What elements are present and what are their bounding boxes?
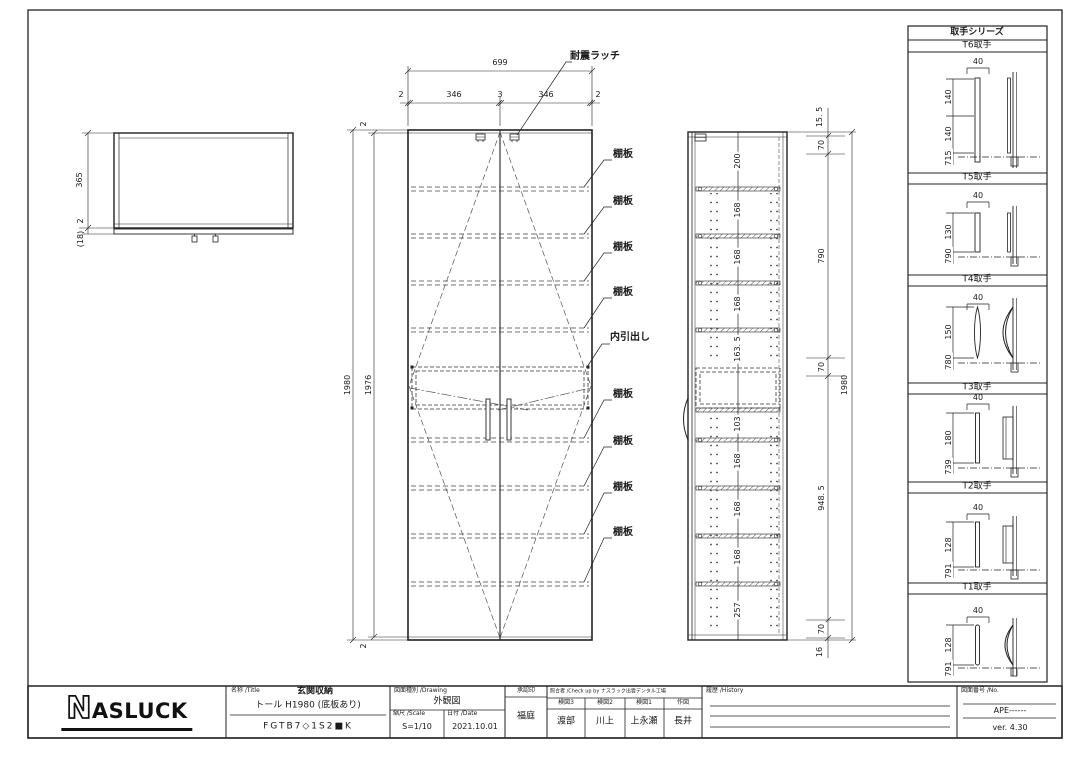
check-header: 照合者 /Check up by ナスラック出雲デンタル工場 — [550, 690, 666, 695]
dim-handle-width: 40 — [973, 504, 983, 512]
dim-handle-width: 40 — [973, 58, 983, 66]
dim-front-edge-bottom: 2 — [360, 643, 368, 648]
dim-handle-width: 40 — [973, 607, 983, 615]
dim-handle: 791 — [945, 561, 953, 580]
check-role: 作図 — [677, 700, 689, 706]
handle-t3 — [946, 404, 1042, 477]
hinge-icon — [213, 234, 218, 242]
label-shelf: 棚板 — [613, 150, 633, 160]
dim-topview-door: (18) — [77, 231, 85, 247]
dim-side-right: 70 — [818, 622, 826, 636]
history-rule-lines — [710, 706, 950, 727]
check-name: 渡部 — [557, 718, 575, 727]
number-header: 図面番号 /No. — [961, 688, 999, 694]
dim-front-width-part: 2 — [595, 91, 600, 99]
dim-side-internal: 200 — [734, 151, 742, 170]
label-drawer: 内引出し — [610, 333, 650, 343]
dim-side-right: 790 — [818, 246, 826, 265]
dim-handle-width: 40 — [973, 394, 983, 402]
handle-t5 — [946, 202, 1042, 266]
dim-handle: 780 — [945, 352, 953, 371]
dim-side-right: 16 — [816, 647, 824, 657]
dim-side-internal: 168 — [734, 294, 742, 313]
dim-front-width-part: 2 — [398, 91, 403, 99]
handle-section-title: T6取手 — [962, 42, 991, 51]
name-header: 名称 /Title — [231, 688, 260, 694]
dim-side-internal: 257 — [734, 600, 742, 619]
name-sub: トール H1980 (底板あり) — [255, 702, 360, 711]
check-role: 検図3 — [558, 700, 574, 706]
dim-side-right: 70 — [818, 138, 826, 152]
number-value: APE------ — [994, 707, 1027, 715]
label-shelf: 棚板 — [613, 483, 633, 493]
label-latch: 耐震ラッチ — [570, 52, 620, 62]
dim-handle: 715 — [945, 148, 953, 167]
handle-t4 — [946, 298, 1042, 372]
dim-side-internal: 168 — [734, 200, 742, 219]
drawing-header: 図面種別 /Drawing — [394, 688, 447, 694]
dim-handle: 140 — [945, 89, 953, 104]
approval-header: 承認印 — [517, 688, 535, 694]
dim-handle: 130 — [945, 224, 953, 239]
side-view — [684, 108, 857, 658]
label-shelf: 棚板 — [613, 288, 633, 298]
handle-t1 — [946, 617, 1042, 676]
dim-front-height-outer: 1980 — [344, 373, 352, 397]
dim-handle-width: 40 — [973, 294, 983, 302]
label-shelf: 棚板 — [613, 437, 633, 447]
model-number: FGTB7◇1S2■K — [263, 723, 353, 732]
handle-section-title: T5取手 — [962, 174, 991, 183]
dim-front-width-part: 346 — [538, 91, 553, 99]
top-view — [79, 130, 293, 242]
dim-handle: 150 — [945, 324, 953, 339]
dim-handle: 791 — [945, 659, 953, 678]
handle-section-title: T1取手 — [962, 584, 991, 593]
dim-front-width-total: 699 — [492, 59, 507, 67]
logo-rest: ASLUCK — [92, 699, 188, 723]
handle-t6 — [946, 68, 1042, 168]
label-shelf: 棚板 — [613, 243, 633, 253]
latch-icon — [476, 134, 485, 142]
nasluck-logo: NASLUCK — [61, 691, 192, 731]
dim-side-right: 70 — [818, 360, 826, 374]
handle-section-title: T3取手 — [962, 384, 991, 393]
check-role: 検図2 — [597, 700, 613, 706]
history-header: 履歴 /History — [706, 688, 743, 694]
check-name: 川上 — [596, 718, 614, 727]
front-view — [347, 62, 612, 643]
dim-handle: 128 — [945, 637, 953, 652]
front-left-dims — [347, 127, 408, 643]
dim-side-internal: 168 — [734, 451, 742, 470]
dim-handle: 180 — [945, 430, 953, 445]
dim-front-width-part: 346 — [446, 91, 461, 99]
check-name: 上永瀬 — [630, 718, 657, 727]
dim-front-width-part: 3 — [497, 91, 502, 99]
dim-handle: 790 — [945, 246, 953, 265]
dim-topview-depth: 365 — [76, 170, 84, 189]
dim-handle-width: 40 — [973, 192, 983, 200]
logo-n: N — [66, 691, 92, 726]
dim-side-internal: 168 — [734, 547, 742, 566]
dim-side-internal: 168 — [734, 247, 742, 266]
dim-front-edge-top: 2 — [360, 121, 368, 126]
handle-panel-title: 取手シリーズ — [950, 29, 1004, 38]
date-value: 2021.10.01 — [452, 723, 498, 731]
latch-icon — [695, 134, 706, 141]
check-name: 長井 — [674, 718, 692, 727]
handle-section-title: T2取手 — [962, 483, 991, 492]
dim-topview-gap: 2 — [77, 218, 85, 223]
dim-side-internal: 103 — [734, 414, 742, 433]
door-handle — [486, 399, 511, 440]
label-shelf: 棚板 — [613, 528, 633, 538]
drawing-linework — [0, 0, 1080, 764]
dim-side-right: 15. 5 — [816, 107, 824, 127]
scale-value: S=1/10 — [402, 723, 432, 731]
dim-side-internal: 163. 5 — [734, 334, 742, 363]
label-shelf: 棚板 — [613, 390, 633, 400]
approval-stamp: 福庭 — [517, 713, 535, 722]
version-value: ver. 4.30 — [992, 724, 1027, 732]
dim-side-right: 948. 5 — [818, 483, 826, 512]
dim-front-height-inner: 1976 — [365, 373, 373, 397]
scale-header: 縮尺 /Scale — [393, 711, 425, 717]
hinge-icon — [192, 234, 197, 242]
date-header: 日付 /Date — [447, 711, 477, 717]
label-leaders — [517, 62, 612, 582]
dim-side-height-total: 1980 — [841, 375, 849, 395]
drawing-value: 外観図 — [433, 698, 460, 707]
name-value: 玄関収納 — [297, 688, 333, 697]
dim-handle: 128 — [945, 537, 953, 552]
label-shelf: 棚板 — [613, 197, 633, 207]
check-role: 検図1 — [636, 700, 652, 706]
dim-handle: 739 — [945, 457, 953, 476]
drawing-sheet: 365 2 (18) 699 2 346 3 346 2 1980 1976 2… — [0, 0, 1080, 764]
dim-handle: 140 — [945, 126, 953, 141]
handle-t2 — [946, 514, 1042, 579]
sheet-frame — [28, 10, 1062, 738]
latch-icon — [510, 134, 519, 142]
handle-section-title: T4取手 — [962, 276, 991, 285]
dim-side-internal: 168 — [734, 499, 742, 518]
